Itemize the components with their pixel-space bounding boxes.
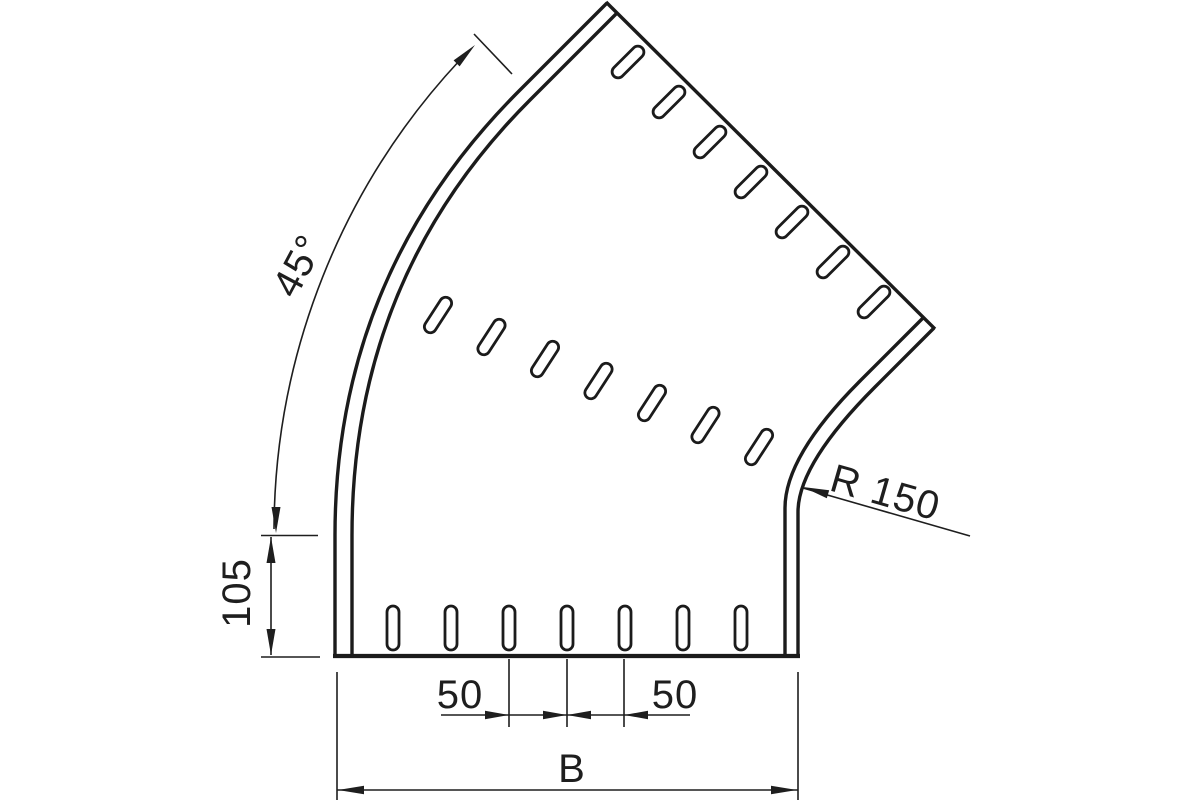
slot	[733, 164, 770, 201]
slot	[815, 244, 852, 281]
radius-label: R 150	[826, 456, 946, 529]
slot	[651, 84, 688, 121]
tray-outline	[333, 2, 935, 657]
width-left-arrow	[338, 786, 364, 794]
middle-slot-row	[422, 295, 775, 467]
tray-angled-end-edge	[606, 2, 935, 329]
slot	[476, 317, 508, 357]
spacing-arrow-2	[543, 711, 567, 719]
slot	[856, 284, 893, 321]
slot	[735, 606, 747, 650]
slot	[774, 204, 811, 241]
angle-arc-top-arrow	[454, 45, 475, 66]
slot	[636, 383, 668, 423]
length-bottom-arrow	[267, 629, 276, 655]
slot	[610, 44, 647, 81]
slot	[692, 124, 729, 161]
angle-arc-bottom-arrow	[272, 507, 281, 533]
slot	[445, 606, 457, 650]
slot	[529, 339, 561, 379]
bottom-slot-row	[387, 606, 747, 650]
length-dimension-label: 105	[215, 558, 259, 628]
length-dimension-105: 105	[215, 536, 320, 658]
slot	[387, 606, 399, 650]
slot	[690, 405, 722, 445]
spacing-right-label: 50	[652, 673, 699, 717]
radius-callout: R 150	[803, 456, 970, 536]
slot	[561, 606, 573, 650]
slot	[583, 361, 615, 401]
slot	[677, 606, 689, 650]
left-rail-outer-line	[335, 3, 607, 657]
angle-dimension-label: 45°	[264, 228, 333, 305]
angle-dimension: 45°	[264, 34, 512, 533]
spacing-left-label: 50	[437, 673, 484, 717]
spacing-arrow-4	[624, 711, 648, 719]
length-top-arrow	[267, 537, 276, 563]
slot	[619, 606, 631, 650]
spacing-arrow-1	[485, 711, 509, 719]
spacing-arrow-3	[567, 711, 591, 719]
angled-end-slot-row	[610, 44, 893, 321]
slot	[743, 427, 775, 467]
width-dimension-label: B	[558, 747, 586, 791]
slot	[422, 295, 454, 335]
cable-tray-45-degree-bend-drawing: 45° 105 R 150 50 50	[0, 0, 1200, 800]
slot	[503, 606, 515, 650]
spacing-dimensions: 50 50	[437, 659, 699, 727]
width-right-arrow	[771, 786, 797, 794]
angle-dimension-end-tick	[474, 34, 512, 74]
technical-drawing-page: 45° 105 R 150 50 50	[0, 0, 1200, 800]
